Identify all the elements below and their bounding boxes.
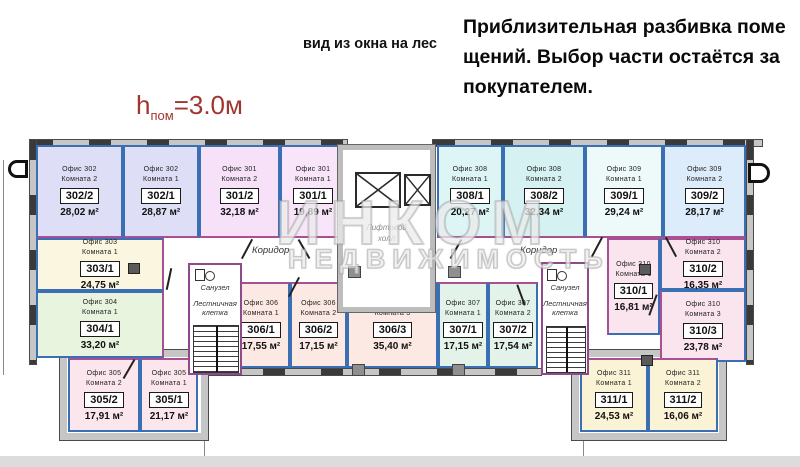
room-number-badge: 305/2: [84, 392, 124, 408]
room-302-1: Офис 302Комната 1302/128,87 м²: [123, 145, 199, 238]
room-name-label: Комната 2: [62, 175, 98, 184]
room-name-label: Комната 1: [596, 379, 632, 388]
room-area-label: 17,91 м²: [85, 411, 124, 422]
room-office-label: Офис 308: [527, 165, 562, 174]
sink-icon: [557, 271, 567, 281]
room-office-label: Офис 306: [244, 299, 279, 308]
room-302-2: Офис 302Комната 2302/228,02 м²: [36, 145, 123, 238]
room-name-label: Комната 1: [243, 309, 279, 318]
room-area-label: 16,06 м²: [664, 411, 703, 422]
room-name-label: Комната 1: [452, 175, 488, 184]
room-number-badge: 309/2: [685, 188, 725, 204]
room-301-2: Офис 301Комната 2301/232,18 м²: [199, 145, 280, 238]
staircase-label-left: Лестничная клетка: [190, 299, 240, 317]
room-name-label: Комната 1: [445, 309, 481, 318]
room-office-label: Офис 305: [87, 369, 122, 378]
room-number-badge: 307/2: [493, 322, 533, 338]
room-area-label: 17,54 м²: [494, 341, 533, 352]
main-note-line-2: щений. Выбор части остаётся за: [463, 42, 797, 72]
room-308-1: Офис 308Комната 1308/120,27 м²: [437, 145, 503, 238]
room-name-label: Комната 1: [606, 175, 642, 184]
room-number-badge: 301/2: [220, 188, 260, 204]
room-name-label: Комната 2: [685, 248, 721, 257]
entrance-door-icon-left: [8, 160, 28, 178]
room-name-label: Комната 2: [222, 175, 258, 184]
elevator-core: Лифтовой холл: [338, 145, 435, 312]
room-301-1: Офис 301Комната 1301/119,89 м²: [280, 145, 346, 238]
room-area-label: 33,20 м²: [81, 340, 120, 351]
room-name-label: Комната 2: [86, 379, 122, 388]
room-number-badge: 305/1: [149, 392, 189, 408]
plan-edge-line: [3, 160, 4, 375]
room-area-label: 24,75 м²: [81, 280, 120, 291]
room-name-label: Комната 2: [665, 379, 701, 388]
room-310-3: Офис 310Комната 3310/323,78 м²: [660, 290, 746, 362]
room-number-badge: 307/1: [443, 322, 483, 338]
ceiling-height-note: hпом=3.0м: [136, 90, 243, 123]
room-name-label: Комната 2: [495, 309, 531, 318]
room-area-label: 17,15 м²: [444, 341, 483, 352]
room-number-badge: 308/1: [450, 188, 490, 204]
corridor-label-left: Коридор: [252, 245, 289, 256]
room-name-label: Комната 1: [295, 175, 331, 184]
room-office-label: Офис 301: [296, 165, 331, 174]
room-307-2: Офис 307Комната 2307/217,54 м²: [488, 282, 538, 368]
stairs-icon-left: [193, 325, 239, 373]
room-number-badge: 310/3: [683, 323, 723, 339]
main-note-line-3: покупателем.: [463, 72, 797, 102]
column-icon: [639, 264, 651, 275]
room-area-label: 19,89 м²: [294, 207, 333, 218]
toilet-icon: [547, 269, 557, 281]
main-note: Приблизительная разбивка поме щений. Выб…: [463, 12, 797, 102]
wall-post-icon: [352, 364, 365, 376]
room-name-label: Комната 2: [687, 175, 723, 184]
door-swing-icon: [166, 268, 173, 290]
room-area-label: 16,35 м²: [684, 280, 723, 291]
room-310-1: Офис 310Комната 1310/116,81 м²: [607, 238, 660, 335]
room-308-2: Офис 308Комната 2308/232,34 м²: [503, 145, 585, 238]
room-number-badge: 306/1: [241, 322, 281, 338]
room-name-label: Комната 1: [82, 248, 118, 257]
room-number-badge: 311/2: [664, 392, 703, 408]
main-note-line-1: Приблизительная разбивка поме: [463, 12, 797, 42]
image-bottom-strip: [0, 456, 800, 467]
staircase-label-right: Лестничная клетка: [543, 299, 587, 317]
exterior-wall-middle-bottom: [204, 368, 542, 376]
room-name-label: Комната 1: [82, 308, 118, 317]
room-number-badge: 311/1: [595, 392, 634, 408]
room-number-badge: 310/1: [614, 283, 654, 299]
room-area-label: 32,18 м²: [220, 207, 259, 218]
room-office-label: Офис 301: [222, 165, 257, 174]
column-icon: [128, 263, 140, 274]
door-swing-icon: [591, 237, 603, 257]
room-area-label: 20,27 м²: [451, 207, 490, 218]
view-note: вид из окна на лес: [303, 36, 437, 52]
room-number-badge: 306/2: [299, 322, 339, 338]
room-office-label: Офис 311: [597, 369, 631, 378]
room-area-label: 28,17 м²: [685, 207, 724, 218]
wall-post-icon: [448, 266, 461, 278]
room-311-2: Офис 311Комната 2311/216,06 м²: [648, 358, 718, 432]
stairs-icon-right: [546, 326, 586, 373]
room-area-label: 17,15 м²: [299, 341, 338, 352]
room-number-badge: 306/3: [373, 322, 413, 338]
service-block-left: Санузел Лестничная клетка: [188, 263, 242, 375]
elevator-hall-label: Лифтовой холл: [343, 222, 430, 244]
room-office-label: Офис 310: [686, 300, 721, 309]
room-311-1: Офис 311Комната 1311/124,53 м²: [580, 358, 648, 432]
corridor-label-right: Коридор: [520, 245, 557, 256]
room-name-label: Комната 2: [301, 309, 337, 318]
room-area-label: 17,55 м²: [242, 341, 281, 352]
room-number-badge: 308/2: [524, 188, 564, 204]
room-area-label: 23,78 м²: [684, 342, 723, 353]
room-office-label: Офис 306: [301, 299, 336, 308]
room-303-1: Офис 303Комната 1303/124,75 м²: [36, 238, 164, 291]
room-area-label: 35,40 м²: [373, 341, 412, 352]
elevator-shaft-icon: [355, 172, 401, 208]
room-office-label: Офис 303: [83, 238, 118, 247]
room-number-badge: 302/2: [60, 188, 100, 204]
room-office-label: Офис 302: [62, 165, 97, 174]
room-area-label: 32,34 м²: [525, 207, 564, 218]
wall-post-icon: [452, 364, 465, 376]
door-swing-icon: [450, 239, 463, 259]
room-name-label: Комната 1: [143, 175, 179, 184]
room-number-badge: 303/1: [80, 261, 120, 277]
column-icon: [641, 355, 653, 366]
room-office-label: Офис 305: [152, 369, 187, 378]
room-office-label: Офис 311: [666, 369, 700, 378]
room-office-label: Офис 304: [83, 298, 118, 307]
room-area-label: 24,53 м²: [595, 411, 634, 422]
room-name-label: Комната 1: [151, 379, 187, 388]
sink-icon: [205, 271, 215, 281]
room-307-1: Офис 307Комната 1307/117,15 м²: [438, 282, 488, 368]
entrance-door-icon-right: [748, 163, 770, 183]
room-name-label: Комната 3: [685, 310, 721, 319]
room-number-badge: 302/1: [141, 188, 181, 204]
room-number-badge: 301/1: [293, 188, 333, 204]
room-area-label: 21,17 м²: [150, 411, 189, 422]
elevator-shaft-icon: [404, 174, 431, 206]
room-area-label: 28,02 м²: [60, 207, 99, 218]
room-number-badge: 304/1: [80, 321, 120, 337]
service-block-right: Санузел Лестничная клетка: [541, 262, 589, 375]
room-office-label: Офис 310: [686, 238, 721, 247]
room-number-badge: 310/2: [683, 261, 723, 277]
room-name-label: Комната 2: [526, 175, 562, 184]
room-office-label: Офис 309: [607, 165, 642, 174]
room-office-label: Офис 302: [144, 165, 179, 174]
room-office-label: Офис 307: [446, 299, 481, 308]
room-area-label: 29,24 м²: [605, 207, 644, 218]
floor-plan-image: вид из окна на лес Приблизительная разби…: [0, 0, 800, 467]
room-number-badge: 309/1: [604, 188, 644, 204]
room-area-label: 28,87 м²: [142, 207, 181, 218]
room-309-1: Офис 309Комната 1309/129,24 м²: [585, 145, 663, 238]
room-304-1: Офис 304Комната 1304/133,20 м²: [36, 291, 164, 358]
bathroom-label-left: Санузел: [190, 283, 240, 292]
room-310-2: Офис 310Комната 2310/216,35 м²: [660, 238, 746, 290]
room-309-2: Офис 309Комната 2309/228,17 м²: [663, 145, 746, 238]
room-area-label: 16,81 м²: [614, 302, 653, 313]
bathroom-label-right: Санузел: [543, 283, 587, 292]
toilet-icon: [195, 269, 205, 281]
wall-post-icon: [348, 266, 361, 278]
room-office-label: Офис 309: [687, 165, 722, 174]
door-swing-icon: [298, 239, 311, 259]
room-office-label: Офис 308: [453, 165, 488, 174]
